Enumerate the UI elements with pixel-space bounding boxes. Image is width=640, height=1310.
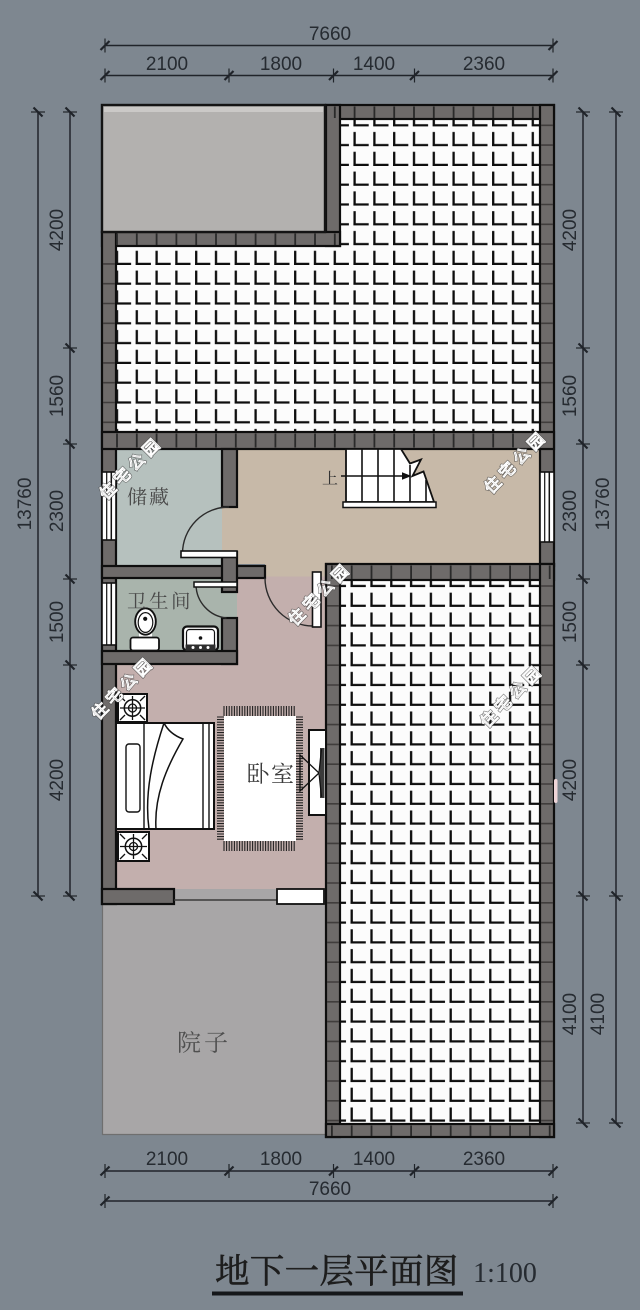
svg-text:7660: 7660: [309, 24, 351, 45]
svg-text:2300: 2300: [47, 490, 68, 532]
svg-text:1500: 1500: [560, 601, 581, 643]
svg-text:1800: 1800: [260, 54, 302, 75]
svg-text:4100: 4100: [588, 993, 609, 1035]
svg-text:2300: 2300: [560, 490, 581, 532]
svg-text:1500: 1500: [47, 601, 68, 643]
svg-text:2360: 2360: [463, 1149, 505, 1170]
svg-text:4100: 4100: [560, 993, 581, 1035]
svg-text:4200: 4200: [47, 759, 68, 801]
svg-text:1:100: 1:100: [473, 1258, 537, 1289]
svg-text:4200: 4200: [560, 209, 581, 251]
svg-text:13760: 13760: [15, 478, 36, 531]
svg-text:1800: 1800: [260, 1149, 302, 1170]
svg-text:7660: 7660: [309, 1179, 351, 1200]
svg-text:4200: 4200: [560, 759, 581, 801]
svg-text:4200: 4200: [47, 209, 68, 251]
svg-text:2360: 2360: [463, 54, 505, 75]
svg-text:1560: 1560: [47, 375, 68, 417]
svg-text:2100: 2100: [146, 1149, 188, 1170]
svg-text:1560: 1560: [560, 375, 581, 417]
svg-text:1400: 1400: [353, 1149, 395, 1170]
svg-text:13760: 13760: [593, 478, 614, 531]
svg-text:1400: 1400: [353, 54, 395, 75]
svg-text:2100: 2100: [146, 54, 188, 75]
